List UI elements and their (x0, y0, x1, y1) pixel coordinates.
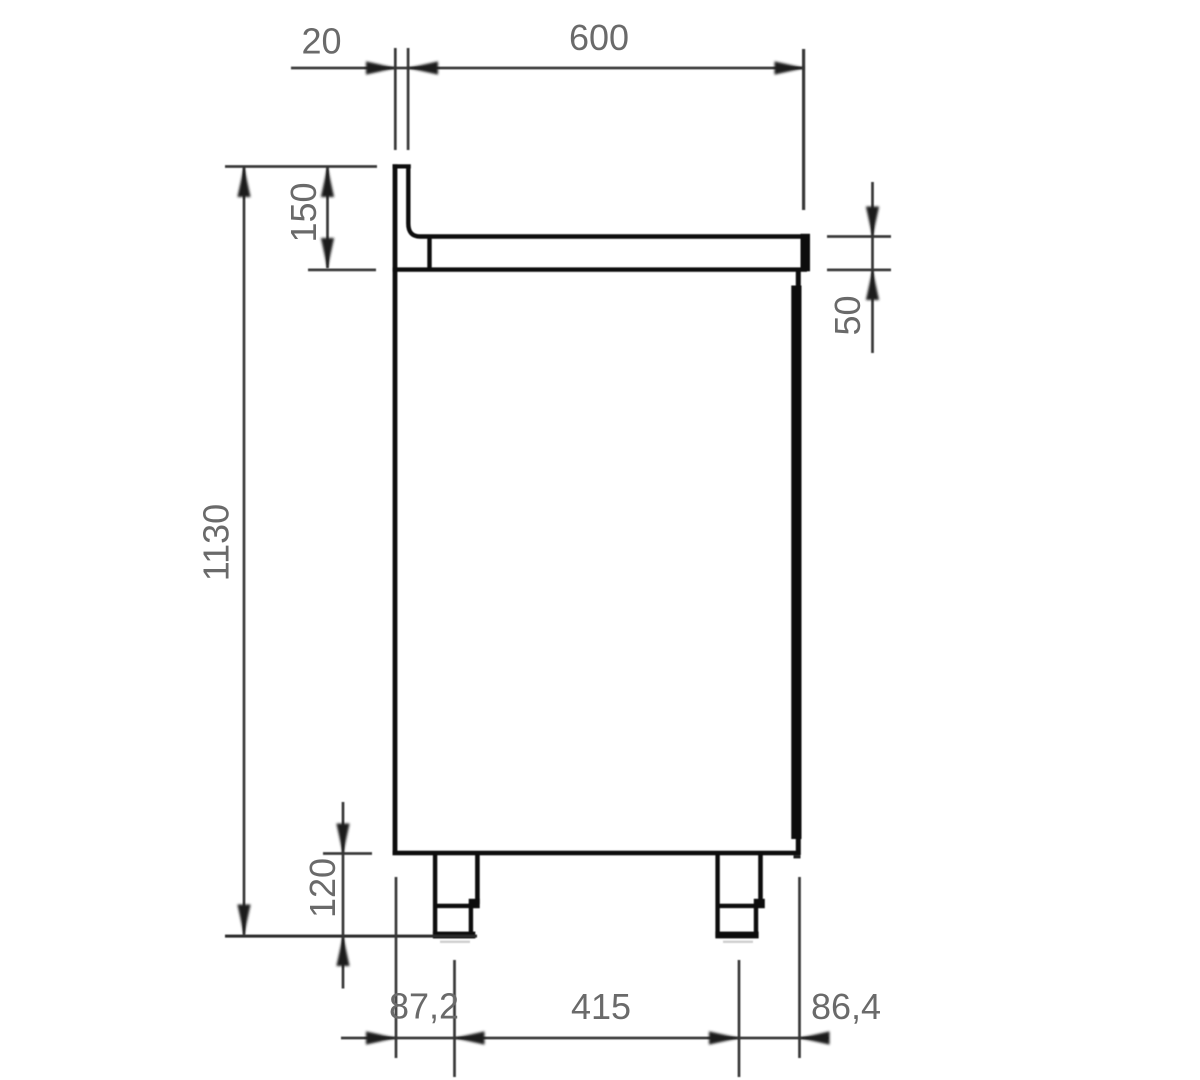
svg-text:86,4: 86,4 (811, 986, 881, 1027)
svg-text:50: 50 (827, 295, 868, 335)
svg-text:120: 120 (302, 858, 343, 918)
svg-text:415: 415 (571, 986, 631, 1027)
svg-text:20: 20 (301, 21, 341, 62)
svg-text:150: 150 (283, 182, 324, 242)
svg-text:1130: 1130 (196, 504, 237, 581)
svg-text:87,2: 87,2 (389, 986, 459, 1027)
svg-text:600: 600 (569, 17, 629, 58)
